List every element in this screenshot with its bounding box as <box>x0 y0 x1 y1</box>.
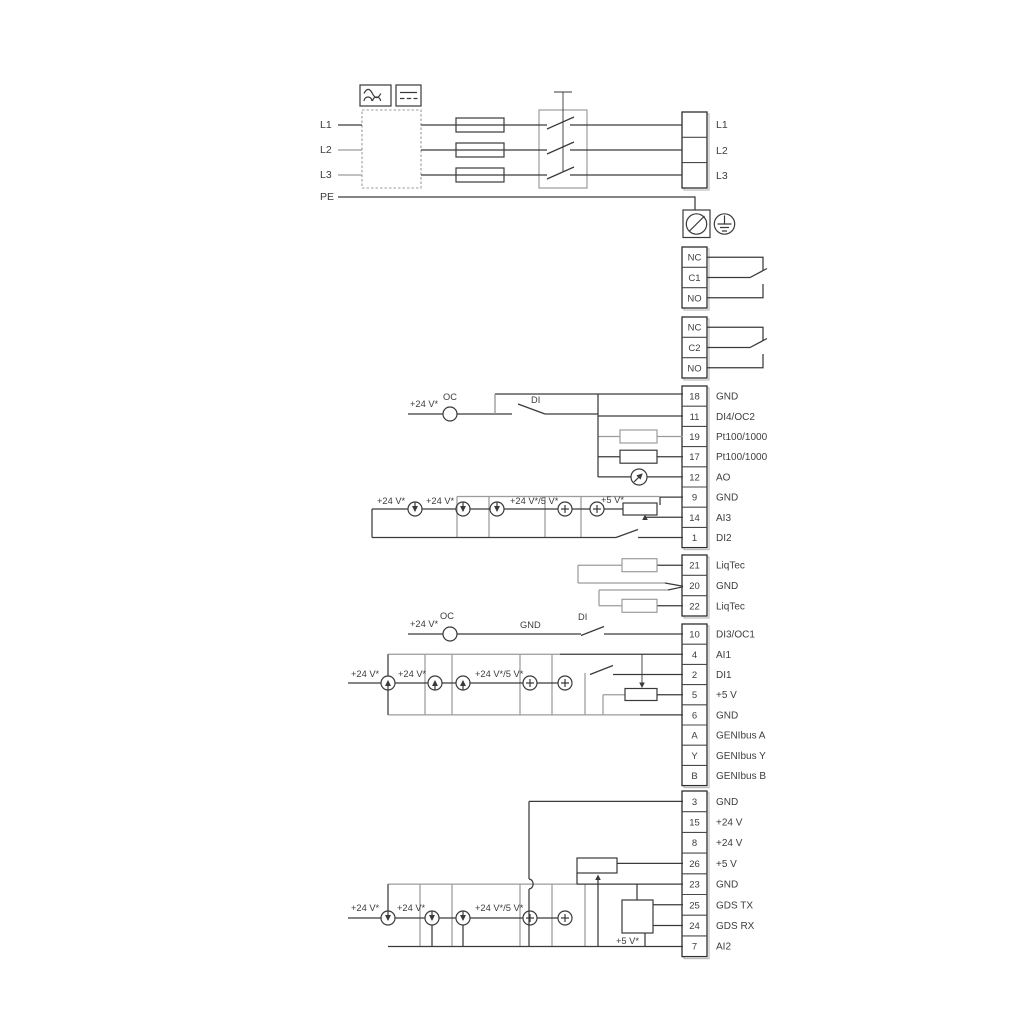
wires-gray <box>338 150 683 947</box>
relay1-terminal: NC <box>688 253 702 264</box>
annotation: +24 V* <box>351 669 380 679</box>
terminal-label: GENIbus A <box>716 731 766 742</box>
resistor-icon <box>622 599 657 612</box>
annotation: GND <box>520 620 541 630</box>
terminal-label: GND <box>716 880 738 891</box>
filter-dashed-box <box>362 110 421 188</box>
terminal-number: 17 <box>689 452 700 463</box>
terminal-block-2: 10 4 2 5 6 A Y B DI3/OC1 AI1 DI1 +5 V GN… <box>682 624 766 788</box>
terminal-number: 14 <box>689 513 700 524</box>
current-source-arrow-icon <box>381 911 470 925</box>
annotation: OC <box>440 611 454 621</box>
terminal-label: AI2 <box>716 942 731 953</box>
relay2-terminal: C2 <box>688 343 700 354</box>
terminal-number: 8 <box>692 838 697 849</box>
protective-earth-icon <box>714 214 734 234</box>
terminal-number: 5 <box>692 690 697 701</box>
annotation: +24 V* <box>426 496 455 506</box>
relay1-terminal: NO <box>687 293 701 304</box>
annotation: +5 V* <box>601 495 624 505</box>
annotation: +24 V* <box>398 669 427 679</box>
resistor-icon <box>622 559 657 572</box>
terminal-number: 4 <box>692 650 697 661</box>
terminal-label: GND <box>716 710 738 721</box>
annotation: +24 V* <box>410 619 439 629</box>
open-collector-circle-icon <box>443 407 457 421</box>
terminal-number: 26 <box>689 859 700 870</box>
terminal-label: GND <box>716 797 738 808</box>
terminal-label: +5 V <box>716 690 737 701</box>
terminal-number: 22 <box>689 601 700 612</box>
relay2-terminal: NC <box>688 323 702 334</box>
relay2-terminal: NO <box>687 363 701 374</box>
annotation: OC <box>443 392 457 402</box>
terminal-label: DI3/OC1 <box>716 630 755 641</box>
power-input-section: L1 L2 L3 PE <box>320 85 735 238</box>
terminal-label: Pt100/1000 <box>716 432 768 443</box>
terminal-number: A <box>691 731 698 742</box>
terminal-label: GENIbus B <box>716 771 766 782</box>
power-in-label: L3 <box>320 169 332 181</box>
terminal-number: 19 <box>689 432 700 443</box>
annotation: +24 V* <box>377 496 406 506</box>
terminal-number: 7 <box>692 942 697 953</box>
power-in-label: L1 <box>320 119 332 131</box>
terminal-number: Y <box>691 751 698 762</box>
terminal-label: GENIbus Y <box>716 751 766 762</box>
annotation: +24 V*/5 V* <box>475 903 524 913</box>
terminal-number: 1 <box>692 533 697 544</box>
annotation: DI <box>578 612 587 622</box>
terminal-number: 25 <box>689 900 700 911</box>
power-terminal-block <box>682 112 709 190</box>
terminal-label: GND <box>716 493 738 504</box>
terminal-number: 9 <box>692 493 697 504</box>
wiring-diagram-page: L1 L2 L3 PE <box>0 0 1024 1024</box>
terminal-label: GND <box>716 581 738 592</box>
resistor-icon <box>620 450 657 463</box>
terminal-label: +24 V <box>716 818 743 829</box>
terminal-label: GND <box>716 392 738 403</box>
terminal-number: B <box>691 771 697 782</box>
dc-lines-icon <box>396 85 421 106</box>
annotation: +24 V*/5 V* <box>475 669 524 679</box>
resistor-icon <box>620 430 657 443</box>
terminal-label: LiqTec <box>716 601 745 612</box>
potentiometer-icon <box>625 654 657 700</box>
annotation: +24 V* <box>410 399 439 409</box>
annotation: +24 V*/5 V* <box>510 496 559 506</box>
open-collector-circle-icon <box>443 627 457 641</box>
analog-output-meter-icon <box>631 469 647 485</box>
terminal-number: 21 <box>689 561 700 572</box>
power-in-label: PE <box>320 191 334 203</box>
liqtec-block: 21 20 22 LiqTec GND LiqTec <box>682 555 745 618</box>
terminal-number: 6 <box>692 710 697 721</box>
terminal-label: Pt100/1000 <box>716 452 768 463</box>
terminal-number: 18 <box>689 392 700 403</box>
relay-block-2: NC C2 NO <box>682 317 709 380</box>
power-out-label: L1 <box>716 119 728 131</box>
terminal-label: GDS TX <box>716 900 753 911</box>
terminal-number: 10 <box>689 630 700 641</box>
terminal-label: LiqTec <box>716 561 745 572</box>
annotation: +24 V* <box>351 903 380 913</box>
relay1-terminal: C1 <box>688 273 700 284</box>
terminal-label: GDS RX <box>716 921 755 932</box>
annotation: +5 V* <box>616 936 639 946</box>
terminal-number: 15 <box>689 818 700 829</box>
terminal-number: 23 <box>689 880 700 891</box>
power-out-label: L2 <box>716 145 728 157</box>
terminal-label: DI1 <box>716 670 732 681</box>
relay-block-1: NC C1 NO <box>682 247 709 310</box>
terminal-block-1: 18 11 19 17 12 9 14 1 GND DI4/OC2 Pt100/… <box>682 386 768 550</box>
terminal-number: 20 <box>689 581 700 592</box>
terminal-number: 2 <box>692 670 697 681</box>
power-out-label: L3 <box>716 170 728 182</box>
potentiometer-icon <box>577 858 617 880</box>
terminal-number: 24 <box>689 921 700 932</box>
cable-gland-icon <box>683 210 710 238</box>
wiring-diagram: L1 L2 L3 PE <box>0 0 1024 1024</box>
annotation: DI <box>531 395 540 405</box>
terminal-block-3: 3 15 8 26 23 25 24 7 GND +24 V +24 V +5 … <box>682 791 755 959</box>
terminal-label: DI2 <box>716 533 732 544</box>
terminal-label: +5 V <box>716 859 737 870</box>
terminal-label: DI4/OC2 <box>716 412 755 423</box>
power-in-label: L2 <box>320 144 332 156</box>
gds-sensor-box-icon <box>622 900 653 933</box>
terminal-number: 11 <box>690 412 700 423</box>
terminal-label: AI3 <box>716 513 731 524</box>
terminal-number: 3 <box>692 797 697 808</box>
ac-waveform-icon <box>360 85 391 106</box>
terminal-label: AI1 <box>716 650 731 661</box>
terminal-label: +24 V <box>716 838 743 849</box>
main-switch-icon <box>539 92 587 188</box>
terminal-number: 12 <box>689 472 700 483</box>
annotation: +24 V* <box>397 903 426 913</box>
terminal-label: AO <box>716 472 731 483</box>
